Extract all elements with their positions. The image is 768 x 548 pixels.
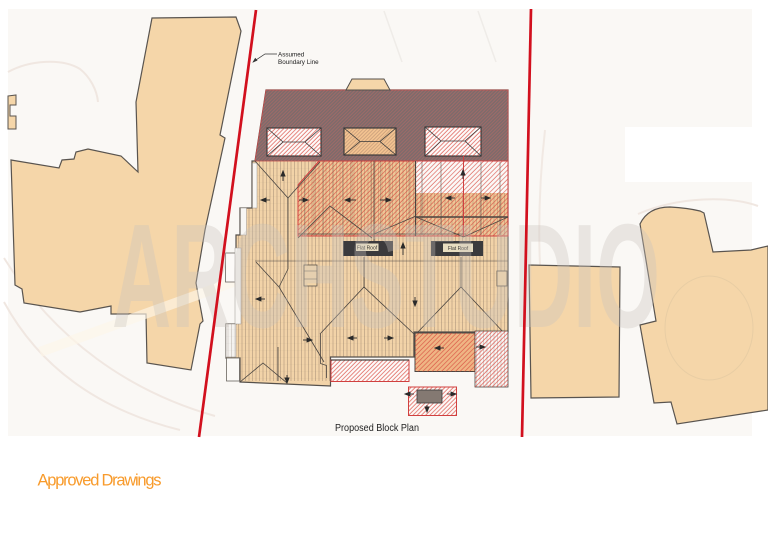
svg-text:Assumed: Assumed (278, 52, 305, 59)
svg-text:Boundary Line: Boundary Line (278, 59, 319, 66)
svg-text:Approved Drawings: Approved Drawings (38, 472, 162, 490)
svg-text:Proposed Block Plan: Proposed Block Plan (335, 423, 419, 434)
svg-text:ARCHSTUDIO: ARCHSTUDIO (112, 194, 660, 359)
